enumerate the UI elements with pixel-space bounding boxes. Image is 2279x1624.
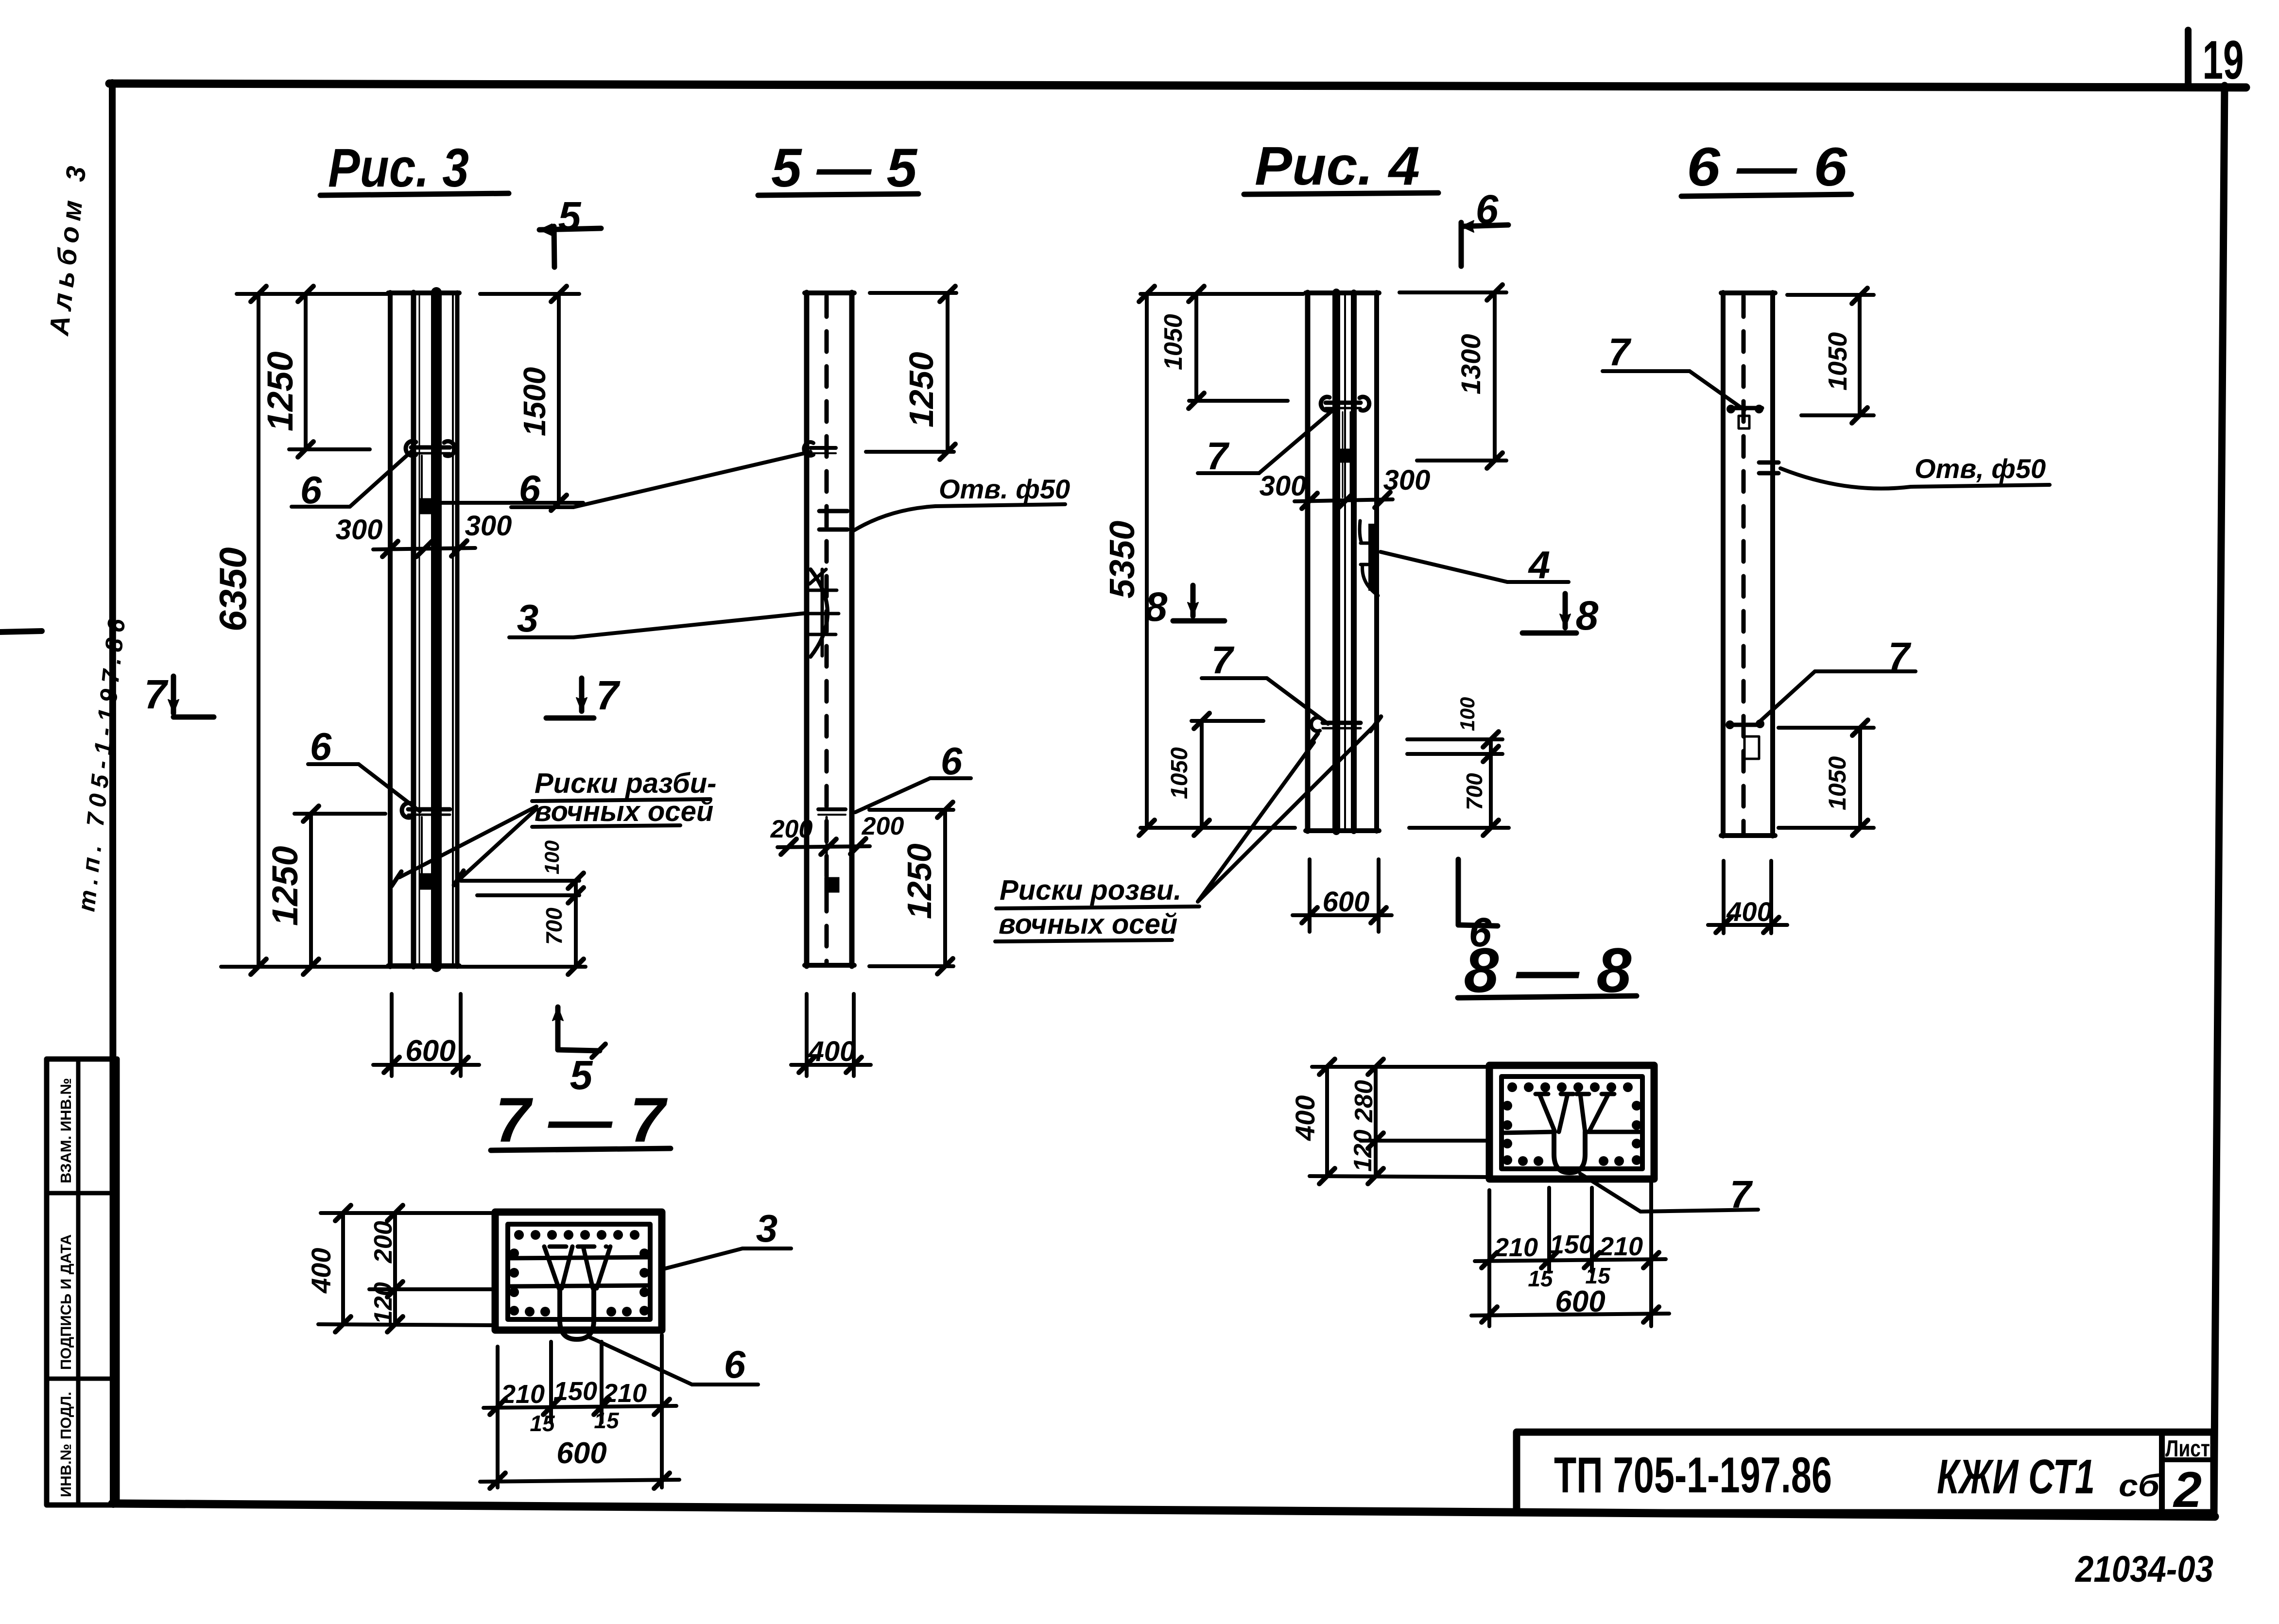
svg-text:7: 7: [1207, 434, 1230, 478]
svg-text:1300: 1300: [1455, 334, 1486, 394]
svg-text:600: 600: [556, 1436, 606, 1470]
svg-text:210: 210: [603, 1379, 647, 1408]
svg-text:2: 2: [2173, 1462, 2202, 1518]
svg-text:1050: 1050: [1167, 747, 1192, 799]
svg-text:400: 400: [808, 1036, 856, 1067]
svg-text:Отв, ф50: Отв, ф50: [1915, 453, 2046, 484]
svg-text:1050: 1050: [1823, 332, 1852, 391]
svg-text:1050: 1050: [1159, 314, 1188, 370]
svg-text:8: 8: [1576, 593, 1599, 638]
svg-text:300: 300: [1260, 470, 1307, 502]
svg-text:6: 6: [519, 467, 541, 511]
svg-text:Рис. 3: Рис. 3: [328, 137, 469, 198]
svg-text:200: 200: [862, 812, 904, 840]
svg-text:400: 400: [306, 1248, 336, 1294]
svg-text:3: 3: [756, 1207, 778, 1250]
svg-text:600: 600: [1323, 886, 1370, 918]
svg-text:1500: 1500: [517, 367, 552, 436]
svg-text:600: 600: [1555, 1285, 1605, 1318]
svg-text:1050: 1050: [1824, 756, 1851, 810]
svg-text:7: 7: [596, 672, 621, 718]
svg-text:100: 100: [1456, 697, 1479, 731]
svg-text:120: 120: [1349, 1129, 1377, 1172]
svg-text:200: 200: [770, 815, 813, 843]
svg-text:400: 400: [1726, 896, 1772, 927]
svg-text:5: 5: [558, 193, 582, 239]
svg-text:Отв. ф50: Отв. ф50: [939, 474, 1070, 504]
svg-text:КЖИ СТ1: КЖИ СТ1: [1937, 1450, 2095, 1504]
svg-text:100: 100: [540, 840, 563, 874]
svg-text:ИНВ.№ ПОДЛ.: ИНВ.№ ПОДЛ.: [57, 1392, 74, 1497]
svg-text:15: 15: [530, 1411, 555, 1436]
svg-text:15: 15: [1528, 1266, 1554, 1291]
svg-text:7: 7: [1608, 330, 1632, 374]
svg-text:5350: 5350: [1103, 521, 1142, 598]
svg-text:400: 400: [1290, 1095, 1320, 1141]
svg-text:Рис. 4: Рис. 4: [1255, 136, 1420, 196]
svg-text:6: 6: [724, 1343, 746, 1386]
svg-text:600: 600: [405, 1034, 455, 1068]
svg-text:700: 700: [1462, 773, 1487, 810]
svg-text:300: 300: [336, 514, 383, 546]
svg-text:Риски розви.: Риски розви.: [1000, 874, 1181, 906]
svg-text:150: 150: [553, 1377, 597, 1406]
svg-text:1250: 1250: [900, 843, 938, 919]
svg-text:6: 6: [941, 739, 963, 783]
svg-text:ВЗАМ. ИНВ.№: ВЗАМ. ИНВ.№: [57, 1078, 74, 1183]
svg-text:7: 7: [144, 671, 169, 717]
svg-text:7: 7: [1211, 638, 1235, 682]
svg-text:700: 700: [541, 907, 567, 945]
svg-text:ТП 705-1-197.86: ТП 705-1-197.86: [1554, 1447, 1832, 1504]
svg-text:ПОДПИСЬ И ДАТА: ПОДПИСЬ И ДАТА: [57, 1234, 74, 1370]
svg-text:Риски разби-: Риски разби-: [535, 768, 716, 799]
svg-text:3: 3: [517, 597, 539, 640]
svg-text:15: 15: [594, 1408, 620, 1433]
svg-text:300: 300: [465, 510, 512, 542]
svg-text:5 — 5: 5 — 5: [771, 137, 918, 198]
svg-text:200: 200: [369, 1221, 397, 1264]
svg-text:6350: 6350: [211, 547, 254, 632]
svg-text:21034-03: 21034-03: [2074, 1549, 2213, 1590]
svg-text:19: 19: [2203, 30, 2244, 90]
svg-text:7 — 7: 7 — 7: [495, 1084, 668, 1155]
svg-text:1250: 1250: [902, 352, 940, 427]
svg-text:вочных осей: вочных осей: [535, 796, 713, 827]
svg-text:6 — 6: 6 — 6: [1687, 137, 1847, 197]
svg-text:6: 6: [1476, 187, 1499, 232]
svg-text:вочных осей: вочных осей: [999, 908, 1177, 940]
svg-text:210: 210: [1494, 1233, 1538, 1262]
svg-text:6: 6: [310, 725, 332, 768]
svg-text:280: 280: [1350, 1080, 1378, 1123]
svg-text:Лист: Лист: [2165, 1436, 2210, 1462]
svg-text:210: 210: [1599, 1232, 1643, 1261]
svg-text:сб: сб: [2119, 1468, 2161, 1503]
svg-text:120: 120: [369, 1282, 397, 1324]
svg-text:4: 4: [1528, 543, 1551, 586]
svg-text:150: 150: [1550, 1230, 1593, 1259]
svg-text:1250: 1250: [265, 846, 305, 926]
svg-text:1250: 1250: [260, 351, 300, 431]
svg-text:210: 210: [501, 1380, 545, 1409]
